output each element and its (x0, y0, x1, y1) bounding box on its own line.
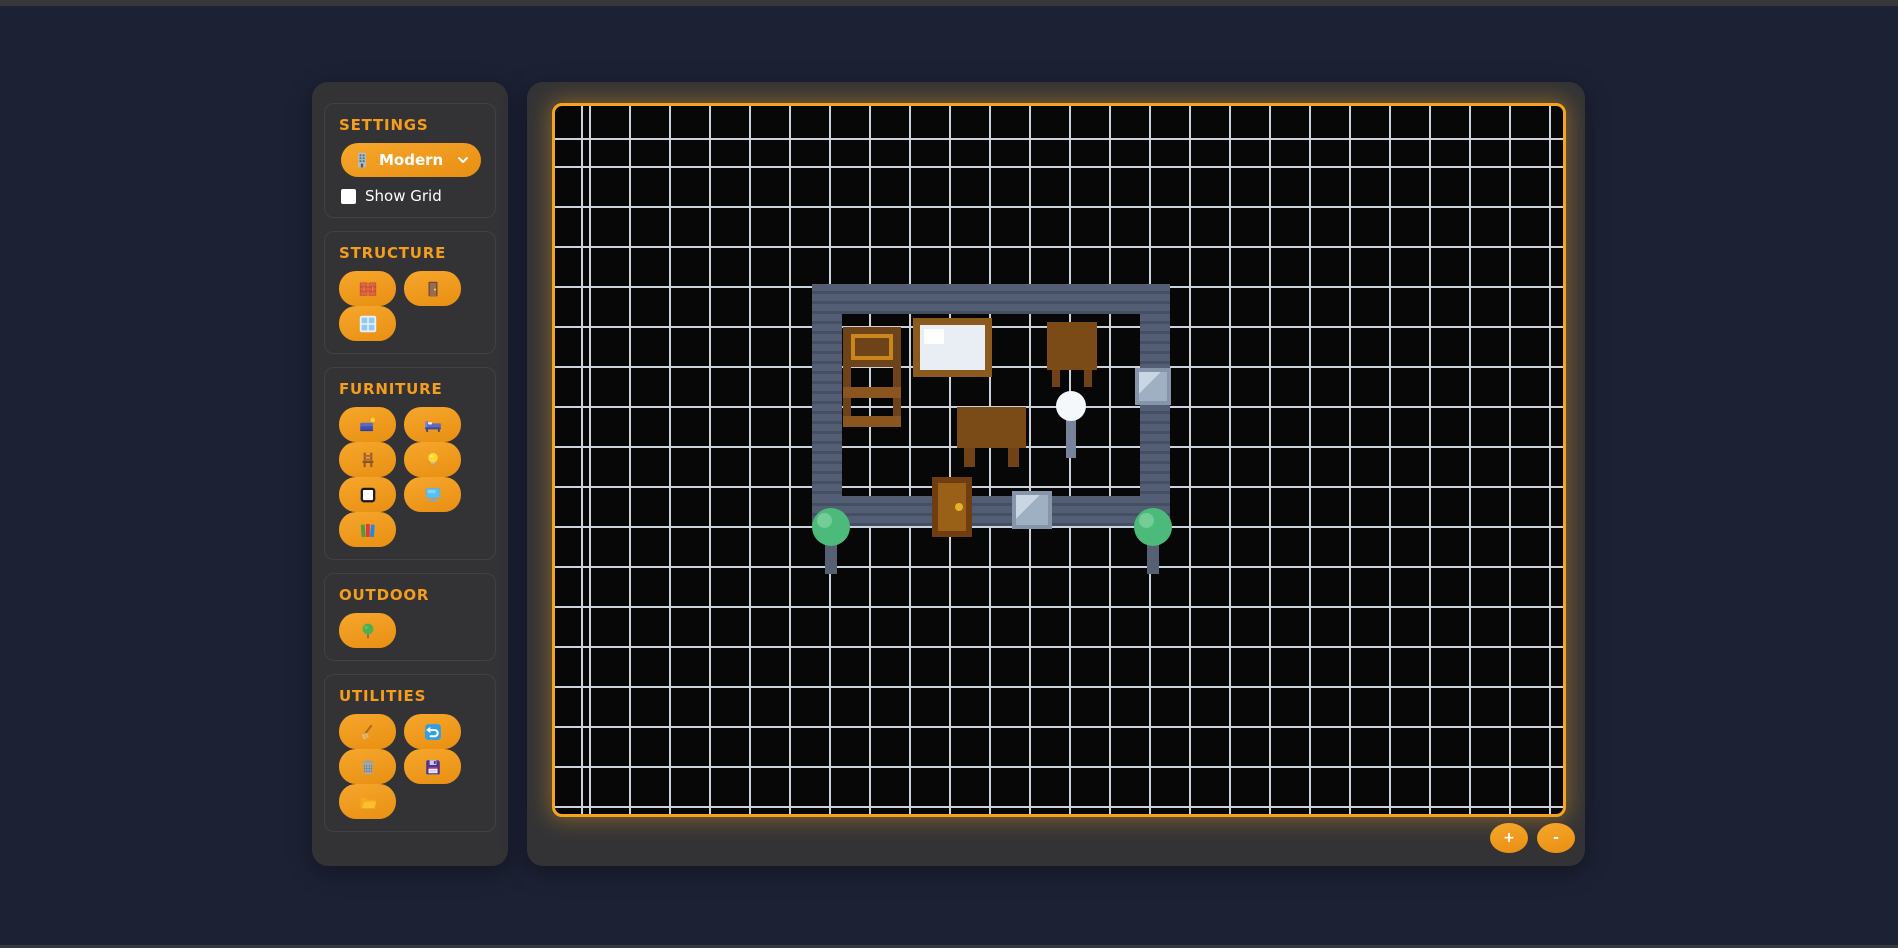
chevron-down-icon (457, 154, 469, 166)
table-leg (1008, 448, 1019, 467)
scene-layer (555, 106, 1563, 814)
section-structure: STRUCTURE (324, 231, 496, 354)
chair[interactable] (843, 367, 901, 427)
door[interactable] (932, 477, 972, 537)
monitor-icon (424, 486, 442, 504)
lamp-tool-button[interactable] (404, 442, 461, 477)
bed-tool-button[interactable] (404, 407, 461, 442)
section-title-structure: STRUCTURE (339, 244, 483, 262)
save-tool-button[interactable] (404, 749, 461, 784)
wall-top[interactable] (812, 284, 1170, 314)
section-furniture: FURNITURE (324, 367, 496, 560)
zoom-in-button[interactable]: + (1490, 823, 1528, 853)
dresser[interactable] (843, 327, 901, 367)
dresser-drawer (851, 334, 893, 360)
wall-left[interactable] (812, 284, 842, 526)
top-edge-bar (0, 0, 1898, 6)
window-pane (1139, 372, 1167, 401)
zoom-controls: + - (1490, 823, 1575, 853)
trash-icon (359, 758, 377, 776)
chair-bar (843, 416, 901, 427)
section-title-settings: SETTINGS (339, 116, 483, 134)
window-pane (1016, 495, 1048, 525)
wall-right[interactable] (1140, 284, 1170, 526)
window-bottom[interactable] (1012, 491, 1052, 529)
section-outdoor: OUTDOOR (324, 573, 496, 661)
utilities-tool-grid (339, 714, 483, 819)
couch-tool-button[interactable] (339, 407, 396, 442)
chair-tool-button[interactable] (339, 442, 396, 477)
tree-icon (359, 622, 377, 640)
board-glint (924, 329, 944, 344)
bulb-icon (424, 451, 442, 469)
desk[interactable] (1047, 322, 1097, 370)
outdoor-tool-grid (339, 613, 483, 648)
builder-canvas[interactable] (552, 103, 1566, 817)
lamp-bulb (1056, 391, 1086, 421)
table-leg (964, 448, 975, 467)
frame-icon (359, 486, 377, 504)
structure-tool-grid (339, 271, 483, 341)
sidebar: SETTINGSModernShow GridSTRUCTUREFURNITUR… (312, 82, 508, 866)
chair-bar (843, 387, 901, 398)
tree-tool-button[interactable] (339, 613, 396, 648)
bookshelf-tool-button[interactable] (339, 512, 396, 547)
show-grid-checkbox[interactable] (341, 189, 356, 204)
show-grid-row: Show Grid (341, 187, 483, 205)
brick-icon (359, 280, 377, 298)
section-settings: SETTINGSModernShow Grid (324, 103, 496, 218)
tree-right[interactable] (1134, 508, 1172, 574)
load-tool-button[interactable] (339, 784, 396, 819)
folder-icon (359, 793, 377, 811)
door-knob (955, 503, 963, 511)
wall-tool-button[interactable] (339, 271, 396, 306)
tree-crown (1134, 508, 1172, 546)
theme-select[interactable]: Modern (341, 143, 481, 177)
eraser-tool-button[interactable] (339, 714, 396, 749)
bed-icon (424, 416, 442, 434)
furniture-tool-grid (339, 407, 483, 547)
table-tool-button[interactable] (339, 477, 396, 512)
tree-trunk (825, 544, 837, 574)
door-icon (424, 280, 442, 298)
table-leg (1084, 370, 1092, 387)
undo-tool-button[interactable] (404, 714, 461, 749)
zoom-out-button[interactable]: - (1537, 823, 1575, 853)
undo-icon (424, 723, 442, 741)
section-title-utilities: UTILITIES (339, 687, 483, 705)
table-leg (1052, 370, 1060, 387)
window-right[interactable] (1135, 368, 1171, 405)
books-icon (359, 521, 377, 539)
whiteboard[interactable] (913, 318, 992, 377)
computer-tool-button[interactable] (404, 477, 461, 512)
tree-crown (812, 508, 850, 546)
theme-selected-value: Modern (379, 151, 449, 169)
section-title-outdoor: OUTDOOR (339, 586, 483, 604)
window-tool-button[interactable] (339, 306, 396, 341)
broom-icon (359, 723, 377, 741)
wall-bottom[interactable] (812, 496, 1170, 526)
tree-trunk (1147, 544, 1159, 574)
show-grid-label: Show Grid (365, 187, 442, 205)
section-title-furniture: FURNITURE (339, 380, 483, 398)
building-icon (353, 151, 371, 169)
canvas-panel: + - (527, 82, 1585, 866)
couch-icon (359, 416, 377, 434)
floor-lamp[interactable] (1056, 391, 1086, 458)
tree-shine (817, 513, 832, 528)
table[interactable] (957, 407, 1026, 448)
chair-icon (359, 451, 377, 469)
floppy-icon (424, 758, 442, 776)
door-tool-button[interactable] (404, 271, 461, 306)
lamp-stem (1066, 419, 1076, 458)
clear-tool-button[interactable] (339, 749, 396, 784)
tree-left[interactable] (812, 508, 850, 574)
window-icon (359, 315, 377, 333)
tree-shine (1139, 513, 1154, 528)
section-utilities: UTILITIES (324, 674, 496, 832)
